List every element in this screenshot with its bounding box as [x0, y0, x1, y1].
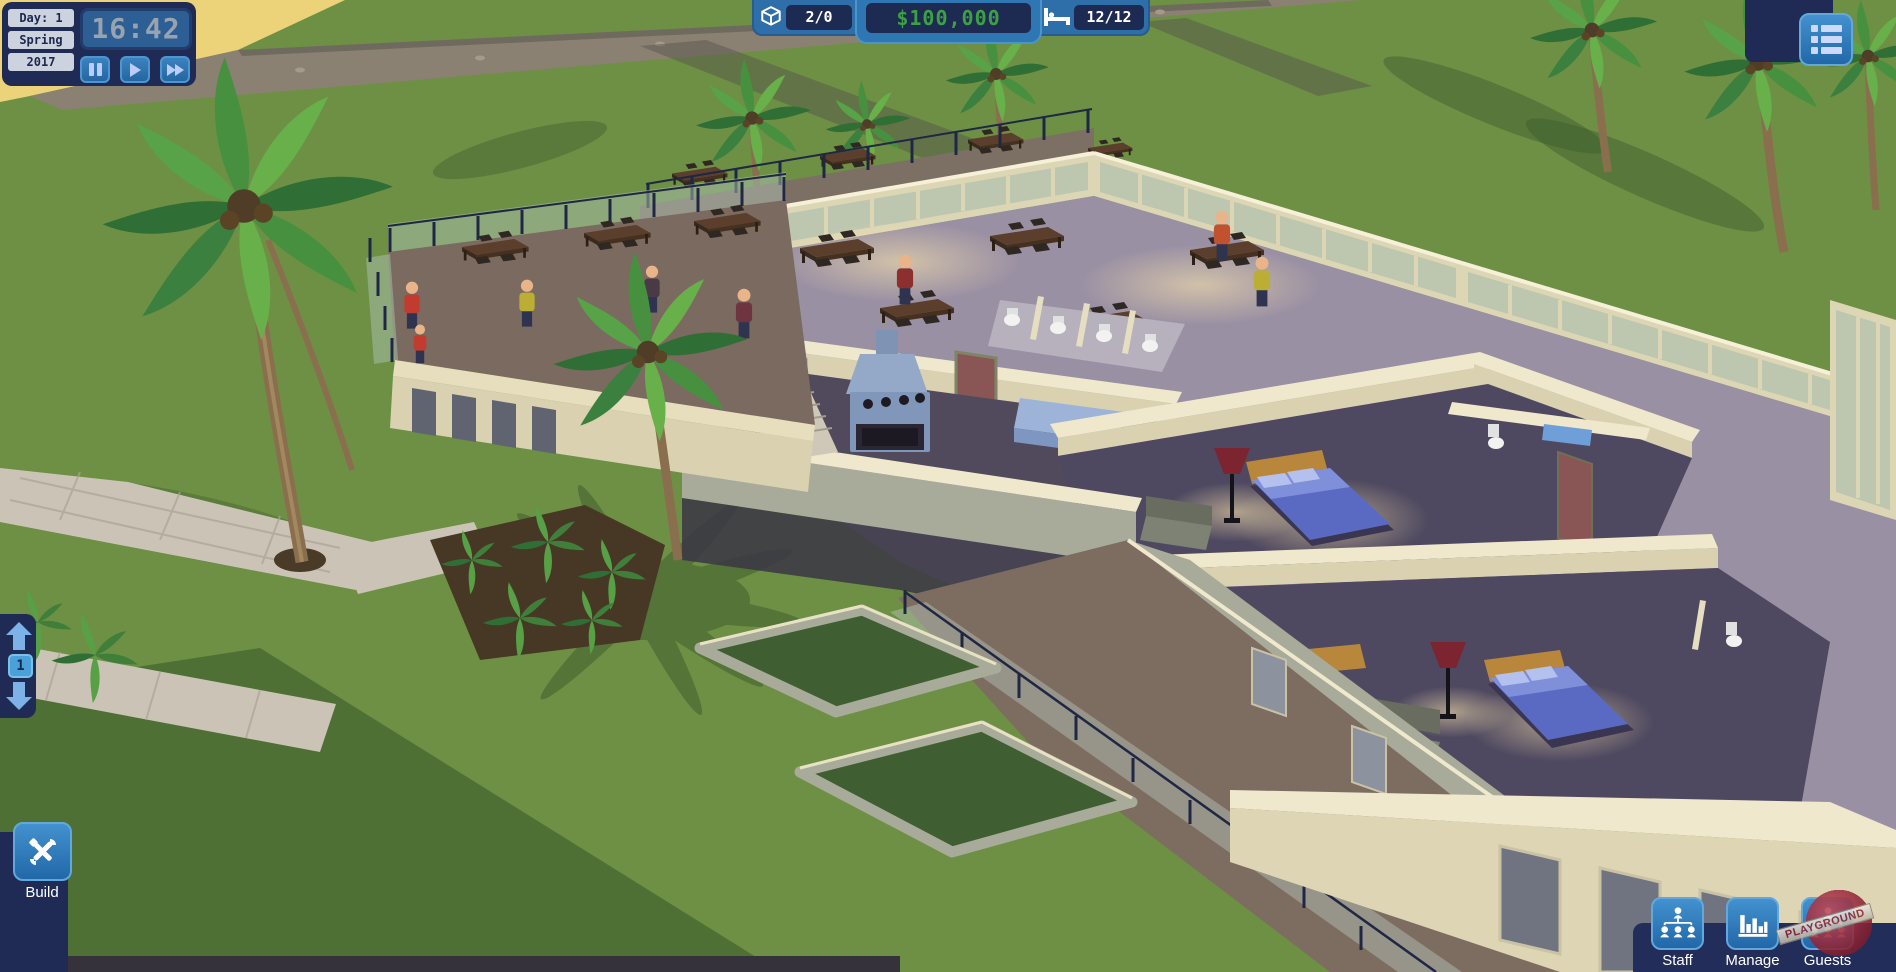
manage-button[interactable] [1726, 897, 1779, 950]
play-button[interactable] [120, 56, 150, 83]
objects-count: 2/0 [786, 5, 852, 30]
guests-button[interactable] [1801, 897, 1854, 950]
door [1558, 452, 1592, 550]
floor-up-button[interactable] [6, 622, 32, 650]
clock-display: 16:42 [80, 8, 192, 50]
staff-button[interactable] [1651, 897, 1704, 950]
beds-count: 12/12 [1074, 5, 1144, 30]
pause-icon [89, 63, 94, 76]
manage-label: Manage [1715, 952, 1790, 969]
date-time-panel: Day: 1 Spring 2017 16:42 [2, 2, 196, 86]
fast-forward-button[interactable] [160, 56, 190, 83]
build-label: Build [2, 884, 82, 901]
org-chart-icon [1658, 904, 1698, 944]
day-display: Day: 1 [8, 9, 74, 27]
play-icon [130, 63, 141, 77]
cube-icon [759, 5, 783, 29]
floor-selector: 1 [0, 614, 36, 718]
money-display: $100,000 [866, 3, 1031, 33]
bed-icon [1042, 6, 1072, 28]
stove-hood [846, 354, 928, 394]
guests-label: Guests [1790, 952, 1865, 969]
season-display: Spring [8, 31, 74, 49]
org-chart-icon [1808, 904, 1848, 944]
resource-bar: 2/0 $100,000 12/12 [752, 0, 1150, 36]
year-display: 2017 [8, 53, 74, 71]
guests-section: Guests [1790, 897, 1865, 969]
money-panel: $100,000 [855, 0, 1042, 44]
list-icon [1811, 25, 1842, 54]
staff-section: Staff [1640, 897, 1715, 969]
game-world[interactable] [0, 0, 1896, 972]
pause-button[interactable] [80, 56, 110, 83]
bar-chart-icon [1733, 904, 1773, 944]
game-screen: Day: 1 Spring 2017 16:42 2/0 $100,000 12… [0, 0, 1896, 972]
floor-down-button[interactable] [6, 682, 32, 710]
build-button[interactable] [13, 822, 72, 881]
current-floor: 1 [8, 654, 33, 678]
menu-button[interactable] [1799, 13, 1853, 66]
staff-label: Staff [1640, 952, 1715, 969]
manage-section: Manage [1715, 897, 1790, 969]
tools-icon [24, 833, 62, 871]
